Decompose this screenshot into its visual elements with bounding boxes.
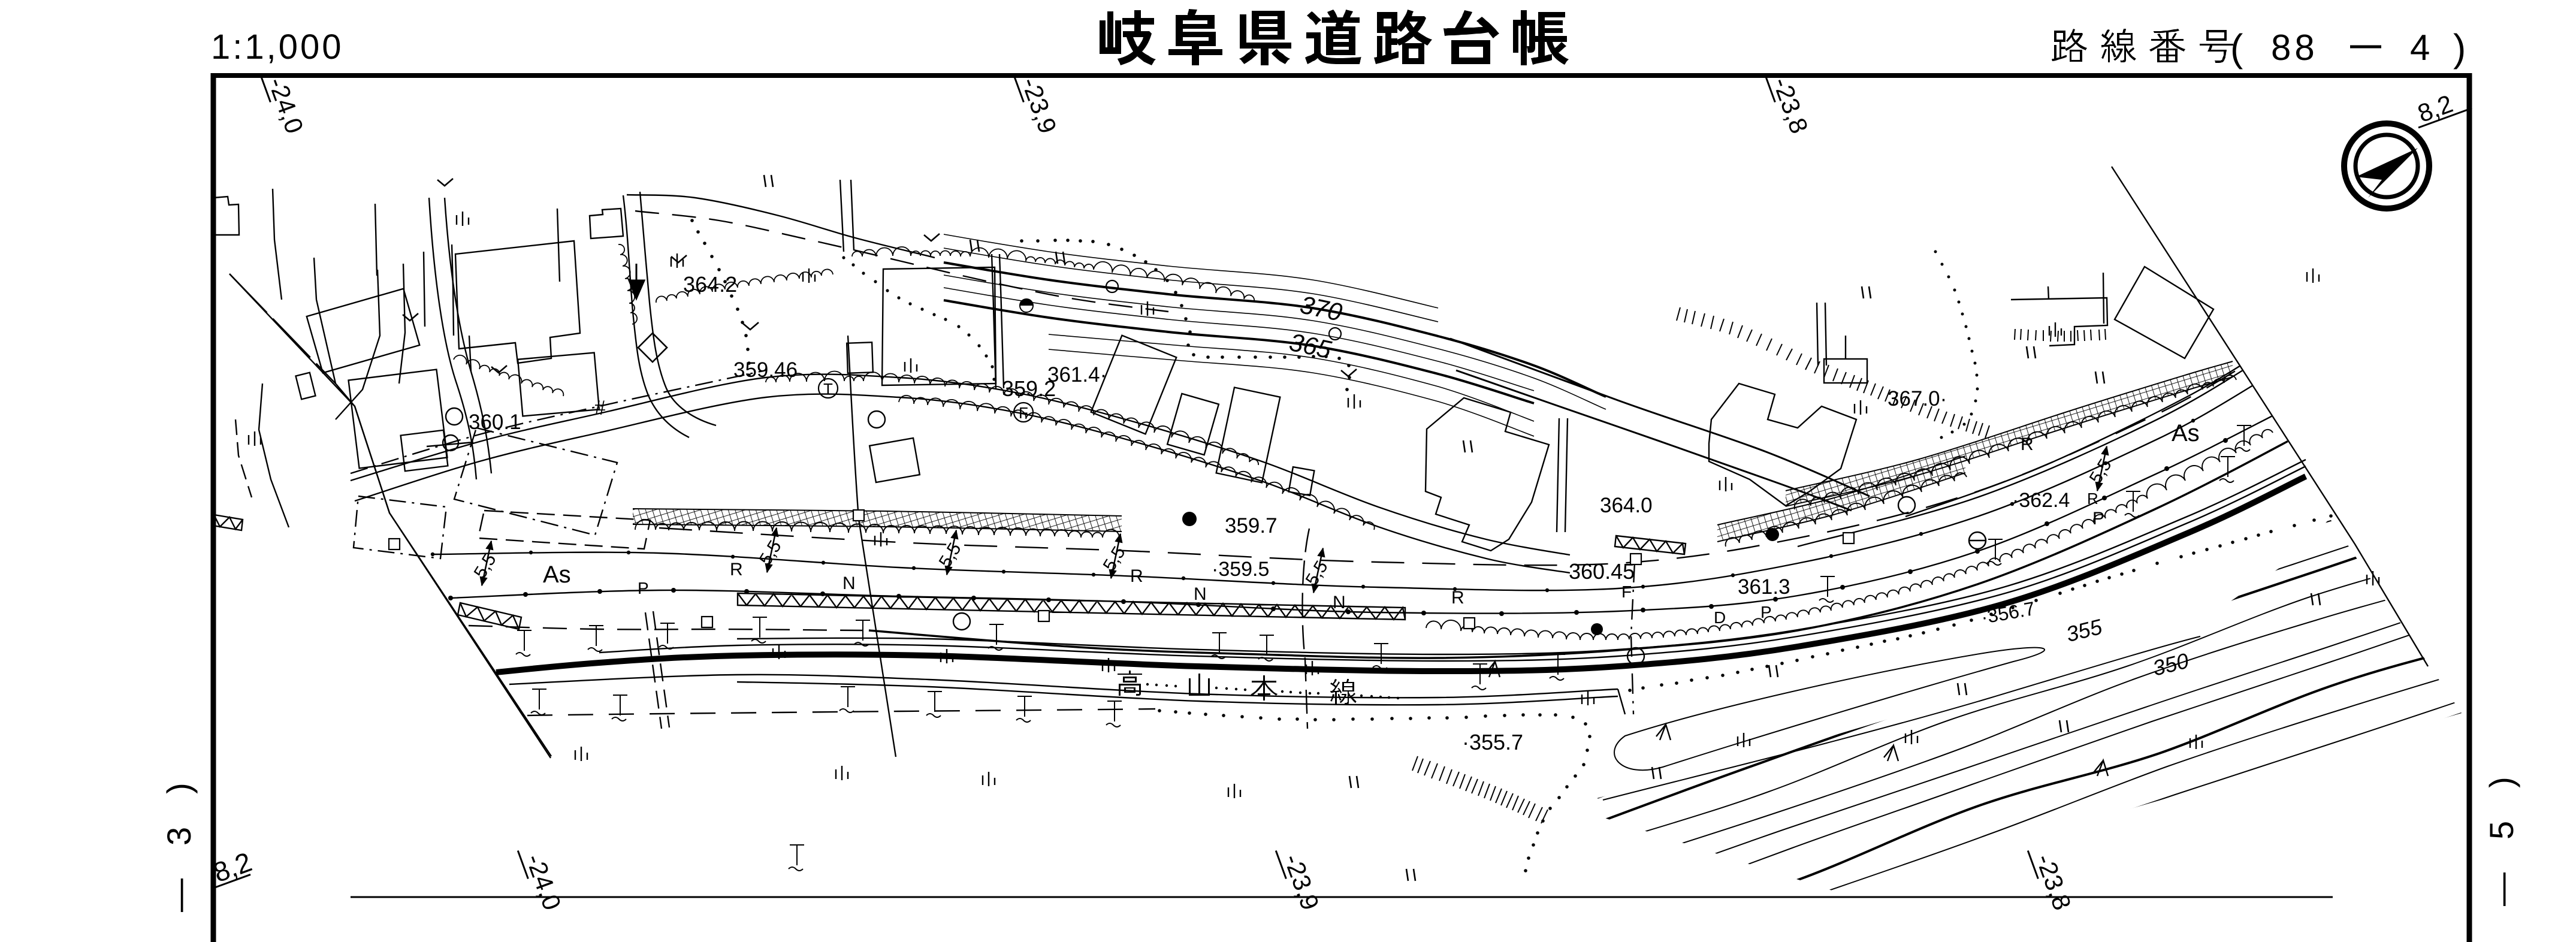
svg-text:P: P bbox=[2092, 509, 2104, 529]
svg-text:4: 4 bbox=[2410, 28, 2430, 68]
svg-text:364.0: 364.0 bbox=[1600, 494, 1653, 517]
svg-text:D: D bbox=[1714, 608, 1726, 627]
svg-text:R: R bbox=[730, 560, 743, 579]
svg-text:R: R bbox=[1130, 566, 1143, 586]
svg-text:360.45: 360.45 bbox=[1569, 559, 1635, 584]
svg-text:·359.5: ·359.5 bbox=[1212, 558, 1269, 581]
svg-text:P: P bbox=[638, 579, 649, 597]
svg-text:·355.7: ·355.7 bbox=[1462, 730, 1523, 754]
svg-text:364.2: 364.2 bbox=[683, 272, 737, 297]
svg-text:361.4·: 361.4· bbox=[1047, 363, 1107, 387]
svg-text:R: R bbox=[1451, 588, 1464, 608]
svg-text:359.46: 359.46 bbox=[733, 358, 798, 382]
svg-text:88: 88 bbox=[2271, 28, 2318, 68]
svg-text:1:1,000: 1:1,000 bbox=[211, 28, 344, 67]
svg-text:As: As bbox=[2172, 420, 2200, 446]
svg-text:#: # bbox=[594, 397, 606, 419]
svg-text:·362.4: ·362.4 bbox=[2012, 489, 2070, 512]
svg-text:P: P bbox=[1760, 603, 1772, 621]
svg-text:—5): —5) bbox=[2483, 744, 2520, 906]
svg-text:(: ( bbox=[2230, 26, 2243, 70]
svg-text:F: F bbox=[1019, 404, 1028, 422]
svg-text:359.7: 359.7 bbox=[1225, 514, 1278, 538]
svg-text:R: R bbox=[2021, 434, 2034, 454]
svg-text:N: N bbox=[1333, 593, 1346, 612]
svg-text:): ) bbox=[2453, 26, 2466, 70]
svg-text:N: N bbox=[842, 573, 856, 593]
svg-text:As: As bbox=[543, 561, 571, 588]
svg-text:T: T bbox=[823, 380, 833, 398]
svg-text:N: N bbox=[1194, 584, 1207, 604]
svg-text:360.1: 360.1 bbox=[469, 410, 521, 434]
svg-text:F: F bbox=[1621, 582, 1632, 601]
svg-text:—3): —3) bbox=[160, 750, 198, 912]
svg-text:R: R bbox=[2087, 490, 2098, 508]
svg-text:361.3: 361.3 bbox=[1738, 575, 1790, 599]
svg-text:367.0·: 367.0· bbox=[1888, 387, 1947, 410]
